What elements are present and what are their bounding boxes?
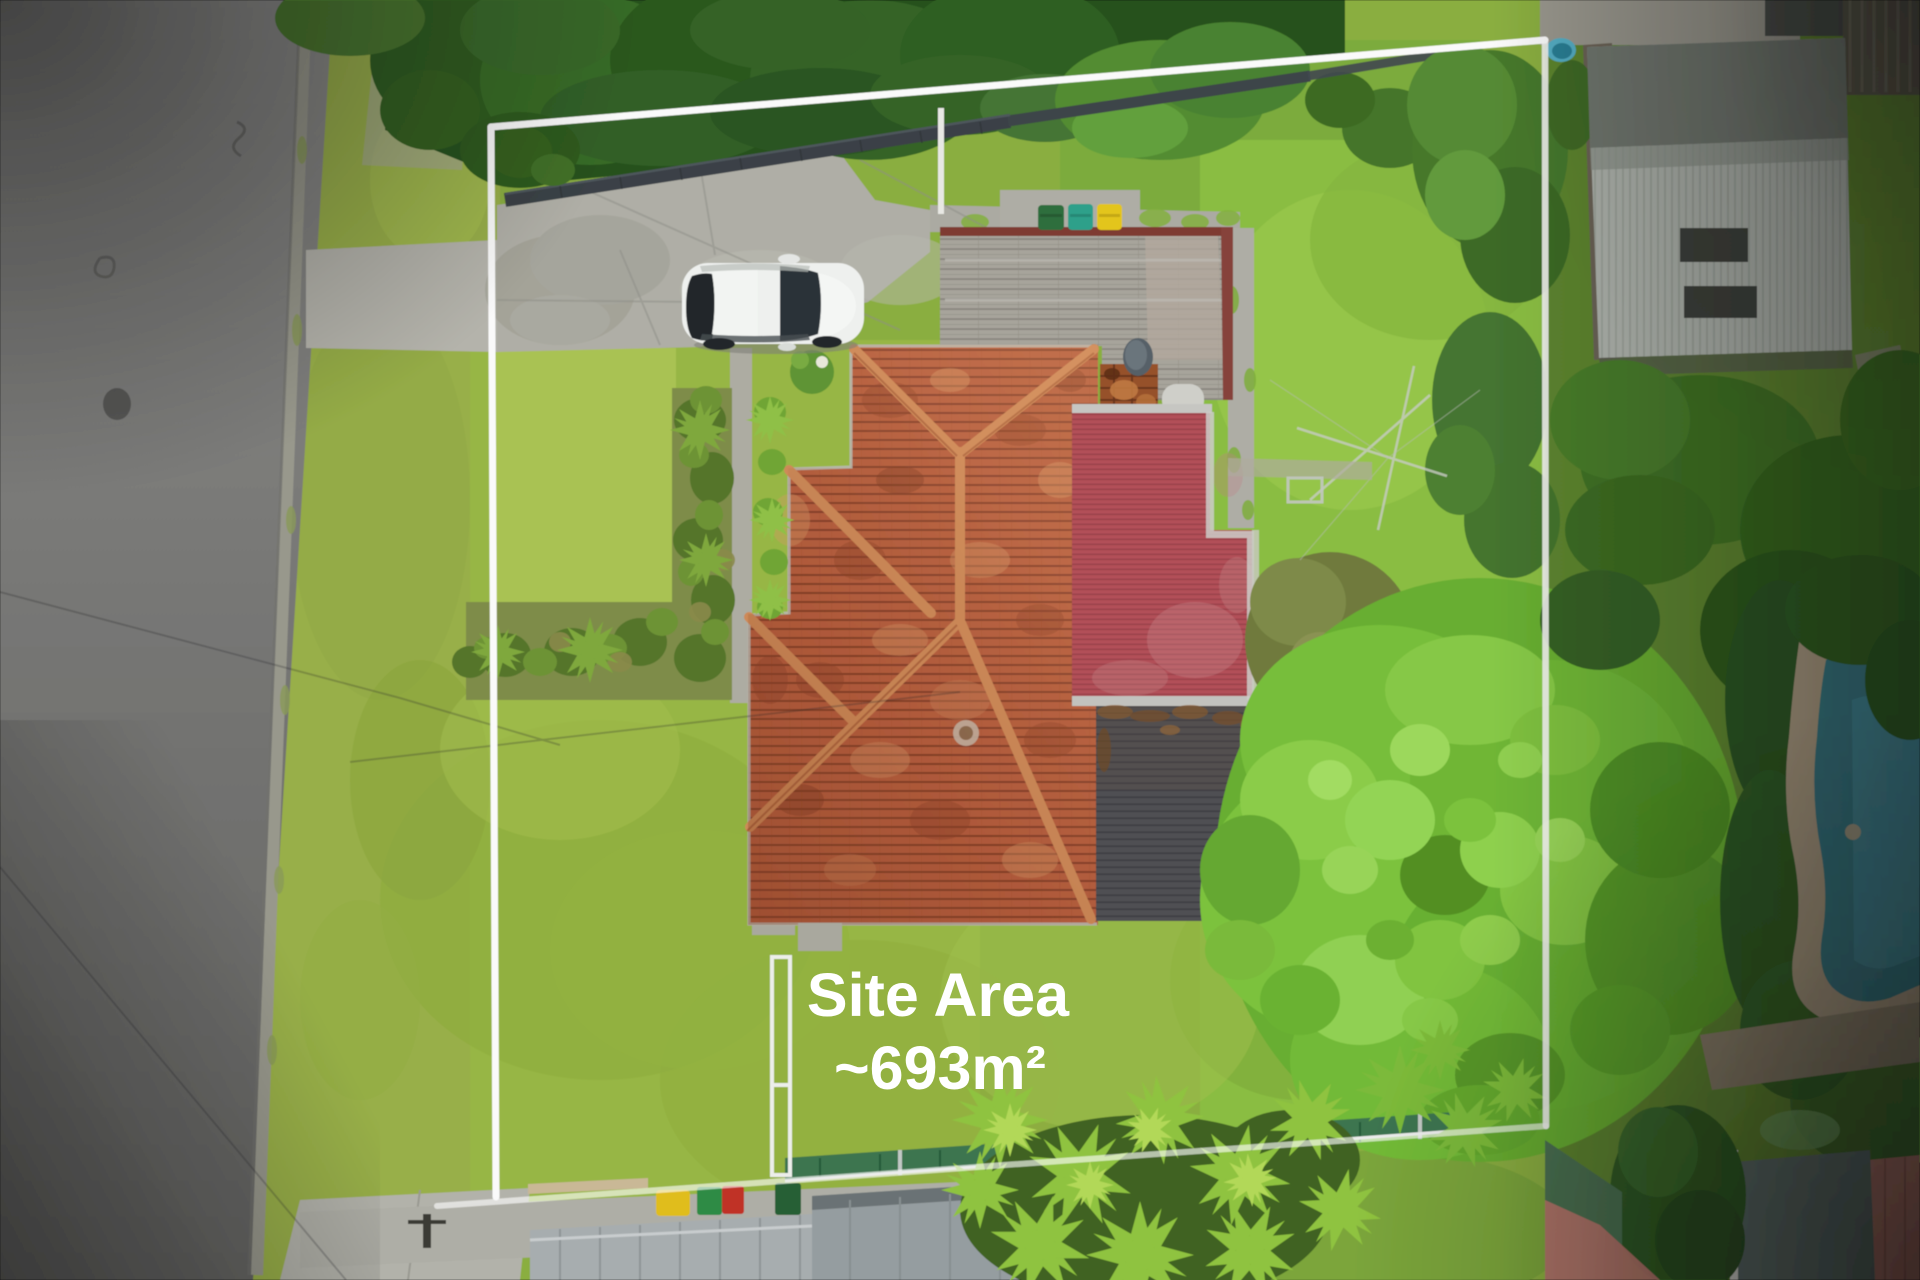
svg-text:~693m²: ~693m² (834, 1034, 1046, 1102)
svg-text:Site Area: Site Area (807, 961, 1070, 1029)
